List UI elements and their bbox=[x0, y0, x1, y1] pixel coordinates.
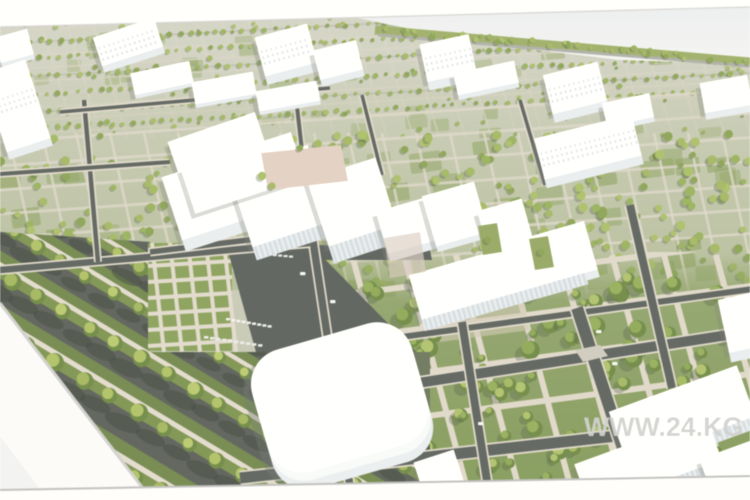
svg-text:WWW.24.KG: WWW.24.KG bbox=[584, 412, 743, 442]
